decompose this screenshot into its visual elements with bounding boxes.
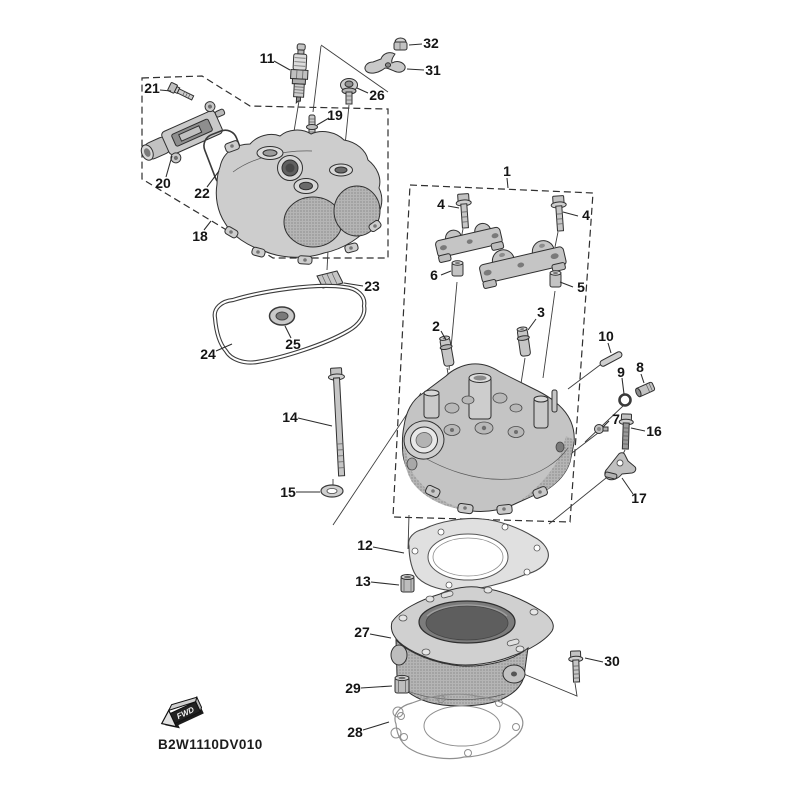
grommet-part bbox=[270, 307, 295, 325]
cylinder-head-part bbox=[400, 364, 574, 515]
bolt-30-part bbox=[568, 651, 583, 682]
callout-9: 9 bbox=[617, 364, 625, 380]
callout-4b: 4 bbox=[582, 207, 590, 223]
callout-24: 24 bbox=[200, 346, 216, 362]
cylinder-part bbox=[391, 587, 553, 706]
fork-lever-part bbox=[365, 53, 405, 74]
cap-bolt-left-part bbox=[456, 193, 473, 228]
dowel-5-part bbox=[550, 271, 561, 287]
washer-part bbox=[321, 485, 343, 497]
callout-5: 5 bbox=[577, 279, 585, 295]
callout-20: 20 bbox=[155, 175, 171, 191]
callout-18: 18 bbox=[192, 228, 208, 244]
callout-7: 7 bbox=[612, 411, 620, 427]
valve-guide-3-part bbox=[516, 326, 532, 356]
callout-2: 2 bbox=[432, 318, 440, 334]
callout-15: 15 bbox=[280, 484, 296, 500]
dowel-29-part bbox=[395, 675, 409, 693]
bolt-26-part bbox=[341, 79, 358, 105]
callout-26: 26 bbox=[369, 87, 385, 103]
callout-21: 21 bbox=[144, 80, 160, 96]
parts-diagram-page: 1 2 3 4 4 5 6 7 8 9 10 11 12 13 14 15 16… bbox=[0, 0, 800, 800]
callout-17: 17 bbox=[631, 490, 647, 506]
diagram-code: B2W1110DV010 bbox=[158, 737, 263, 752]
valve-cover-part bbox=[216, 130, 382, 264]
callout-32: 32 bbox=[423, 35, 439, 51]
callout-6: 6 bbox=[430, 267, 438, 283]
callout-8: 8 bbox=[636, 359, 644, 375]
callout-3: 3 bbox=[537, 304, 545, 320]
fitting-8-part bbox=[635, 382, 656, 398]
cap-nut-part bbox=[394, 38, 407, 50]
bolt-7-part bbox=[595, 425, 609, 434]
spark-plug-part bbox=[289, 44, 309, 104]
bolt-21-part bbox=[167, 82, 194, 101]
dowel-13-part bbox=[401, 575, 414, 593]
callout-16: 16 bbox=[646, 423, 662, 439]
bolt-16-part bbox=[618, 414, 633, 449]
long-bolt-part bbox=[328, 368, 350, 477]
callout-31: 31 bbox=[425, 62, 441, 78]
callout-30: 30 bbox=[604, 653, 620, 669]
callout-14: 14 bbox=[282, 409, 298, 425]
bracket-17-part bbox=[604, 453, 635, 480]
callout-22: 22 bbox=[194, 185, 210, 201]
callout-19: 19 bbox=[327, 107, 343, 123]
fwd-direction-marker: FWD bbox=[156, 694, 206, 735]
callout-28: 28 bbox=[347, 724, 363, 740]
callout-29: 29 bbox=[345, 680, 361, 696]
cap-bolt-right-part bbox=[551, 195, 568, 231]
callout-11: 11 bbox=[260, 50, 275, 66]
parts-diagram-canvas: 1 2 3 4 4 5 6 7 8 9 10 11 12 13 14 15 16… bbox=[0, 0, 800, 800]
callout-25: 25 bbox=[285, 336, 301, 352]
dowel-6-part bbox=[452, 261, 463, 276]
callout-1: 1 bbox=[503, 163, 511, 179]
o-ring-part bbox=[620, 395, 631, 406]
valve-guide-2-part bbox=[438, 335, 455, 367]
callout-23: 23 bbox=[364, 278, 380, 294]
callout-4a: 4 bbox=[437, 196, 445, 212]
callout-10: 10 bbox=[598, 328, 614, 344]
callout-12: 12 bbox=[357, 537, 373, 553]
callout-27: 27 bbox=[354, 624, 370, 640]
air-valve-part bbox=[133, 98, 235, 175]
callout-13: 13 bbox=[355, 573, 371, 589]
head-gasket-part bbox=[409, 518, 549, 590]
